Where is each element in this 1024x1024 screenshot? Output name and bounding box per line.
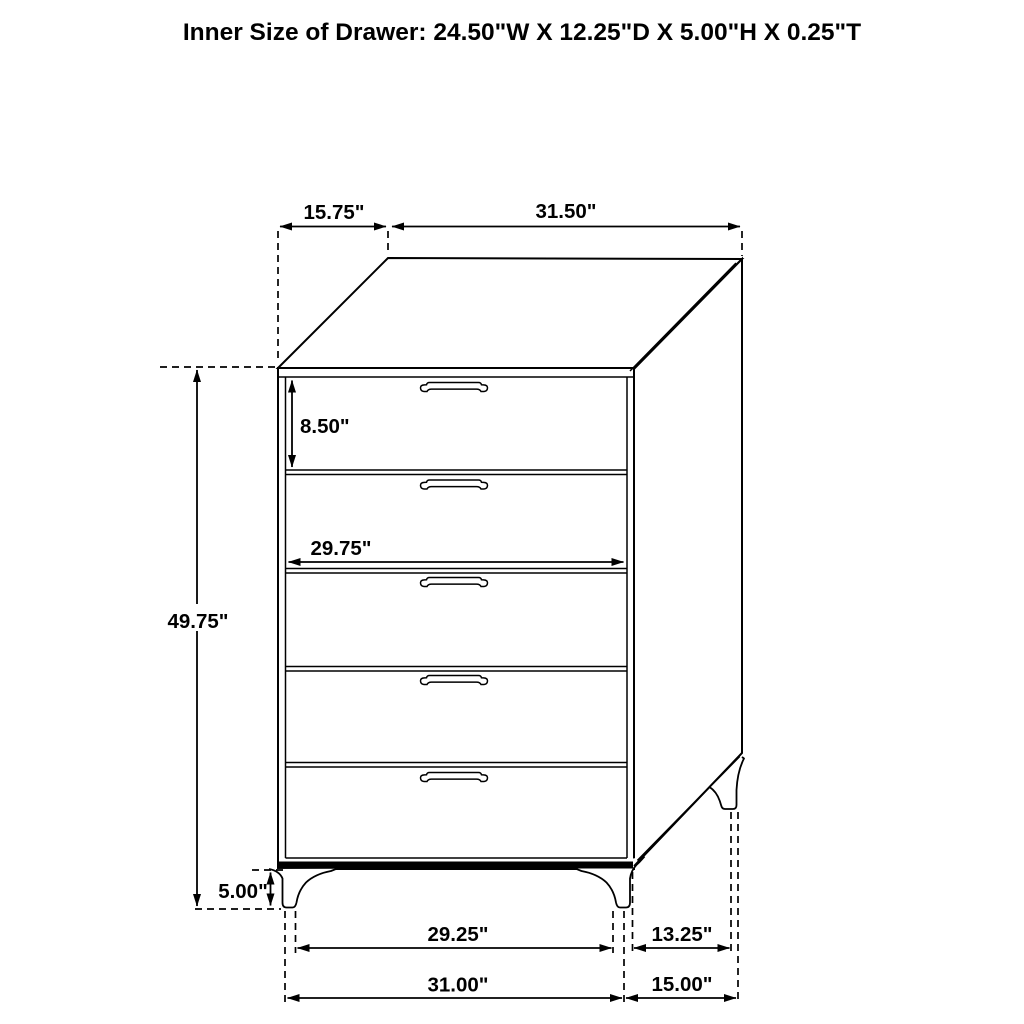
dimension-diagram-page: Inner Size of Drawer: 24.50"W X 12.25"D … [0, 0, 1024, 1024]
dim-top-width-label: 31.50" [535, 200, 596, 223]
chest-dimension-diagram: Inner Size of Drawer: 24.50"W X 12.25"D … [0, 0, 1024, 1024]
page-title: Inner Size of Drawer: 24.50"W X 12.25"D … [183, 19, 861, 46]
dim-side-base-depth-label: 15.00" [651, 973, 712, 996]
dim-front-base-width: 31.00" [288, 974, 623, 999]
dim-drawer-front-width-label: 29.75" [310, 537, 371, 560]
dim-top-width: 31.50" [392, 200, 742, 256]
dim-side-base-depth: 15.00" [626, 973, 736, 998]
dim-front-base-width-label: 31.00" [427, 974, 488, 997]
dim-overall-height: 49.75" [160, 367, 281, 909]
dim-overall-height-label: 49.75" [167, 610, 228, 633]
dim-top-drawer-height-label: 8.50" [300, 415, 350, 438]
chest-illustration [269, 258, 744, 908]
dim-front-feet-span-label: 29.25" [427, 923, 488, 946]
dim-leg-height: 5.00" [218, 870, 285, 906]
dim-leg-height-label: 5.00" [218, 880, 268, 903]
chest-front-panel [278, 368, 634, 869]
dim-top-depth-label: 15.75" [303, 201, 364, 224]
base-band [279, 862, 633, 869]
dim-side-feet-span-label: 13.25" [651, 923, 712, 946]
dim-front-feet-span: 29.25" [298, 923, 612, 948]
dim-overall-height-extension-lines [160, 367, 281, 909]
dim-side-feet-span: 13.25" [634, 923, 730, 948]
front-left-leg [269, 869, 337, 908]
